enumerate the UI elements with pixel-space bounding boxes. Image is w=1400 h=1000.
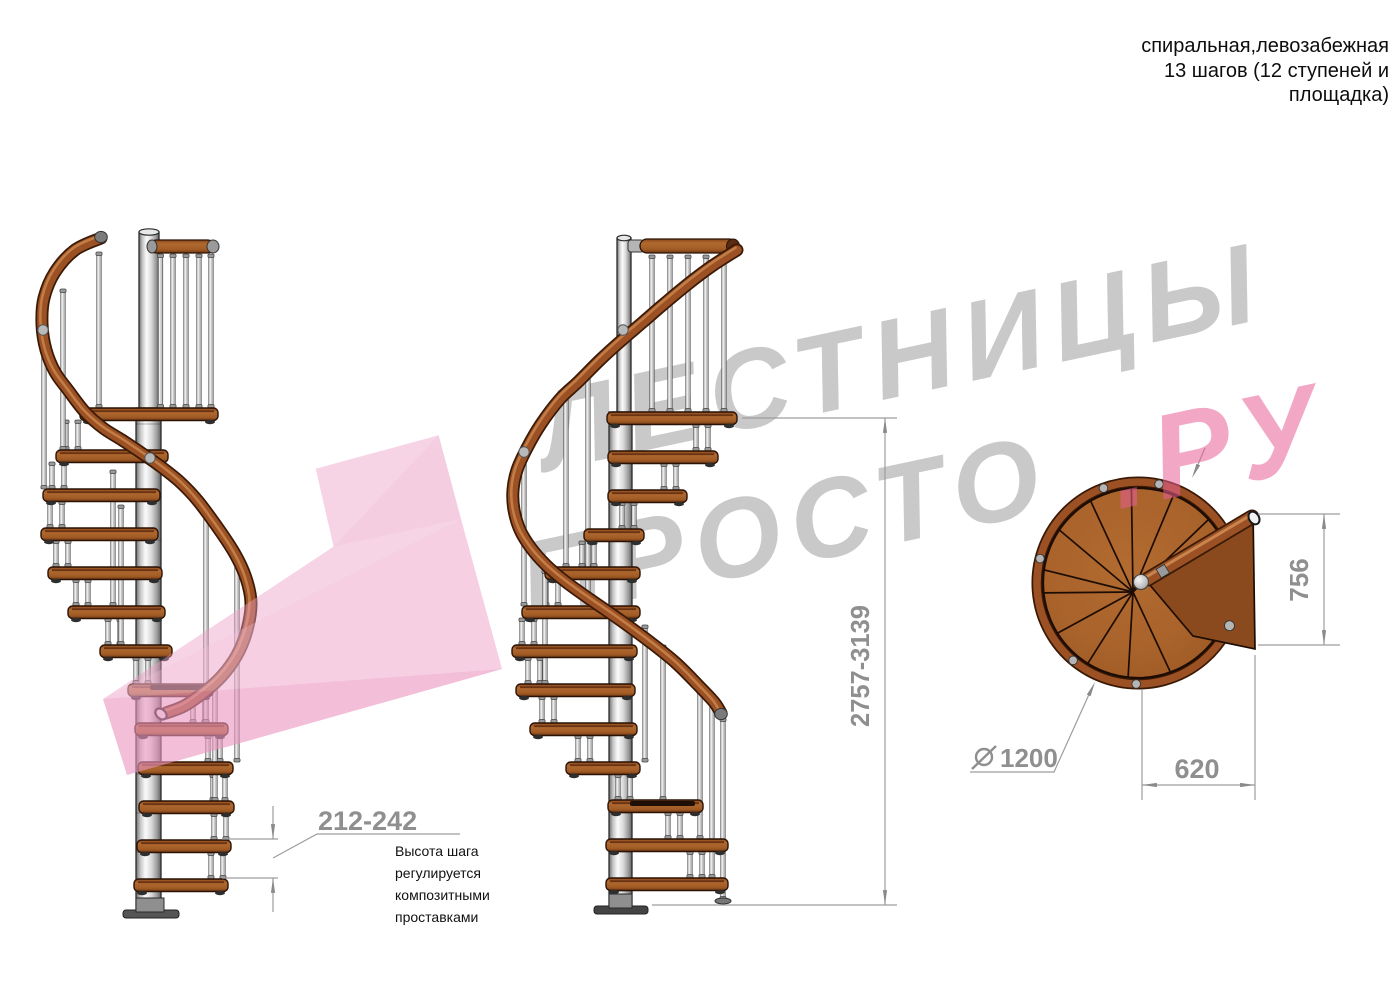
svg-text:1200: 1200 bbox=[1000, 743, 1058, 773]
svg-text:спиральная,левозабежная: спиральная,левозабежная bbox=[1141, 35, 1389, 57]
svg-text:13 шагов (12 ступеней и: 13 шагов (12 ступеней и bbox=[1164, 60, 1389, 82]
svg-text:композитными: композитными bbox=[395, 887, 490, 903]
svg-text:212-242: 212-242 bbox=[318, 806, 417, 836]
svg-text:регулируется: регулируется bbox=[395, 865, 481, 881]
svg-text:проставками: проставками bbox=[395, 909, 478, 925]
svg-text:2757-3139: 2757-3139 bbox=[847, 605, 875, 727]
svg-text:620: 620 bbox=[1174, 754, 1219, 784]
svg-text:756: 756 bbox=[1284, 558, 1314, 601]
svg-text:Высота шага: Высота шага bbox=[395, 843, 479, 859]
svg-text:площадка): площадка) bbox=[1289, 84, 1389, 106]
